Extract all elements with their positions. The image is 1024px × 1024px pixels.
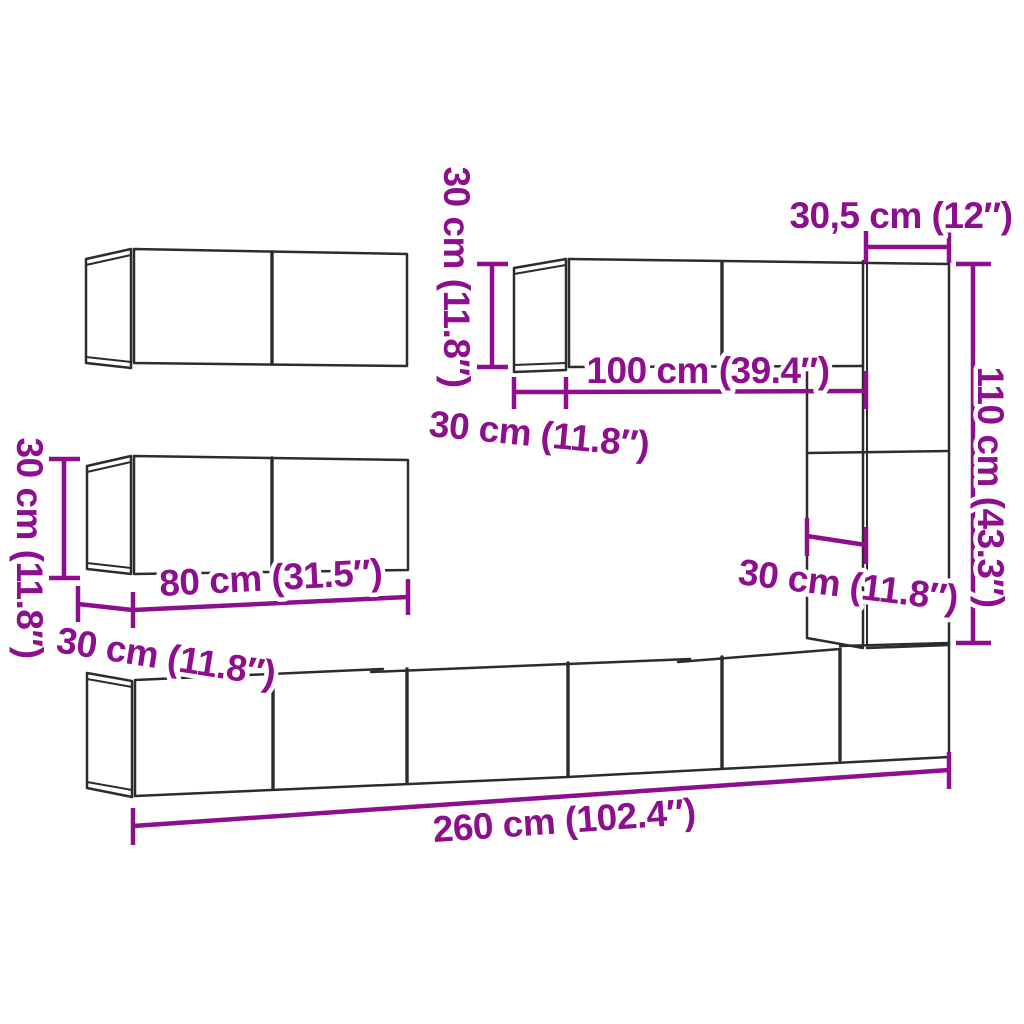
side-panel bbox=[87, 456, 131, 574]
dim-label: 30,5 cm (12″) bbox=[789, 195, 1012, 236]
dim-tall-cabinet-width: 30,5 cm (12″) bbox=[789, 195, 1012, 263]
dim-label: 80 cm (31.5″) bbox=[158, 551, 383, 604]
cabinet-top-left bbox=[86, 249, 407, 368]
furniture-dimension-diagram: 30 cm (11.8″) 30 cm (11.8″) 30 cm (11.8″… bbox=[0, 0, 1024, 1024]
dim-label: 30 cm (11.8″) bbox=[436, 166, 477, 387]
dim-label: 30 cm (11.8″) bbox=[427, 403, 651, 465]
dim-label: 110 cm (43.3″) bbox=[970, 366, 1011, 607]
dim-upper-cabinet-height: 30 cm (11.8″) bbox=[436, 166, 508, 387]
dim-label: 100 cm (39.4″) bbox=[586, 350, 829, 391]
side-panel-bottom-thickness bbox=[87, 563, 131, 568]
side-panel-bottom-thickness bbox=[86, 357, 131, 362]
dimension-diagram-canvas: 30 cm (11.8″) 30 cm (11.8″) 30 cm (11.8″… bbox=[0, 0, 1024, 1024]
dim-line bbox=[566, 391, 866, 392]
dim-total-width: 260 cm (102.4″) bbox=[133, 752, 949, 850]
dim-upper-right-cabinet-width: 100 cm (39.4″) bbox=[566, 350, 866, 409]
dim-label: 260 cm (102.4″) bbox=[431, 791, 696, 850]
top-edge-segment-2 bbox=[371, 659, 690, 672]
cabinet-tall-right bbox=[807, 261, 949, 757]
top-edge bbox=[569, 259, 949, 264]
dim-left-cabinet-width: 80 cm (31.5″) bbox=[133, 551, 408, 628]
dim-label: 30 cm (11.8″) bbox=[9, 437, 50, 658]
dim-line bbox=[78, 604, 133, 610]
side-panel bbox=[86, 249, 131, 368]
dim-tall-cabinet-depth: 30 cm (11.8″) bbox=[736, 518, 960, 619]
dim-line bbox=[807, 536, 866, 545]
top-edge-segment-3 bbox=[678, 649, 840, 662]
shelf-joint bbox=[807, 451, 949, 453]
dim-right-column-height: 110 cm (43.3″) bbox=[956, 264, 1011, 643]
side-panel-bottom-thickness bbox=[514, 363, 566, 365]
dim-label: 30 cm (11.8″) bbox=[736, 551, 960, 619]
side-panel bbox=[514, 259, 566, 372]
side-panel bbox=[87, 673, 132, 797]
